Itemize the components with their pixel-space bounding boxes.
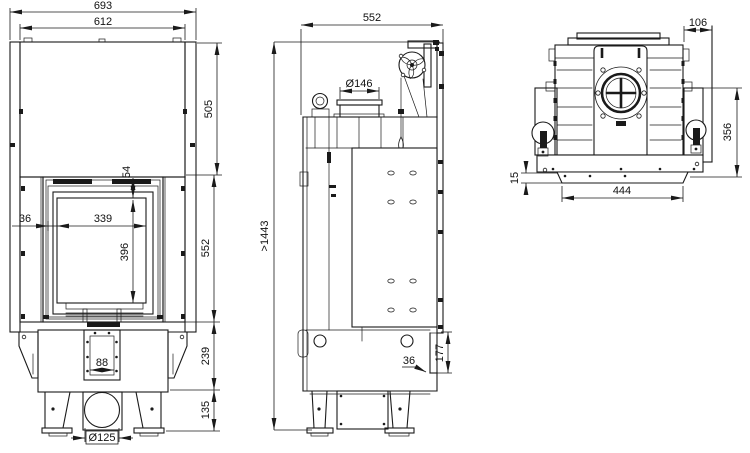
front-view: 693 612 505 552 239 135 54 36 33 — [10, 0, 222, 444]
convection-fan — [399, 52, 426, 79]
front-frame-left — [10, 42, 20, 332]
dim-front-hood-height: 505 — [203, 100, 215, 118]
drawing-canvas: 693 612 505 552 239 135 54 36 33 — [0, 0, 750, 453]
rear-view: 106 356 15 444 — [509, 17, 742, 202]
base-plate — [557, 172, 688, 183]
ashpan-slot — [84, 330, 120, 380]
dim-rear-frame-offset: 106 — [689, 17, 707, 29]
dim-front-leg-height: 135 — [200, 401, 212, 419]
dim-glass-height: 396 — [119, 243, 131, 261]
side-view: >1443 552 Ø146 177 36 — [259, 12, 452, 436]
bottom-vent — [87, 322, 120, 327]
front-column-left — [20, 177, 43, 322]
top-vent-right — [112, 179, 151, 184]
dim-rear-lower-height: 356 — [722, 123, 734, 141]
dim-rear-base-width: 444 — [613, 185, 631, 197]
center-duct-box — [337, 391, 388, 429]
rear-flue-flange — [595, 67, 647, 126]
dim-base-plate-thickness: 15 — [509, 172, 521, 184]
dim-air-inlet-diameter: Ø125 — [89, 432, 116, 444]
dim-front-base-height: 239 — [200, 347, 212, 365]
dim-ashpan-slot-width: 88 — [96, 357, 108, 369]
fireplace-technical-drawing: 693 612 505 552 239 135 54 36 33 — [0, 0, 750, 453]
lifting-eye — [312, 94, 329, 118]
dim-side-depth: 552 — [363, 12, 381, 24]
air-inlet — [85, 393, 120, 428]
dim-front-door-section-height: 552 — [200, 239, 212, 257]
bracket-left — [19, 332, 38, 378]
dim-glass-top-inset: 54 — [121, 166, 133, 178]
dim-front-overall-width: 693 — [94, 0, 112, 12]
dim-side-total-height: >1443 — [259, 221, 271, 252]
bracket-right — [168, 332, 187, 378]
front-column-right — [163, 177, 185, 322]
front-hood — [20, 42, 185, 177]
front-dimensions: 693 612 505 552 239 135 54 36 33 — [10, 0, 222, 444]
flue-collar — [334, 100, 384, 117]
front-frame-right — [185, 42, 196, 332]
dim-frame-side-inset: 36 — [19, 213, 31, 225]
dim-flue-collar-diameter: Ø146 — [346, 78, 373, 90]
counterweight-panel — [352, 148, 437, 327]
front-leg-right — [136, 392, 161, 428]
top-vent-left — [53, 179, 92, 184]
dim-rear-wall-offset: 36 — [403, 355, 415, 367]
dim-front-body-width: 612 — [94, 16, 112, 28]
glass-frame — [53, 192, 153, 314]
dim-rear-outlet-height: 177 — [434, 344, 446, 362]
front-leg-left — [45, 392, 70, 428]
door-frame — [43, 177, 163, 322]
dim-glass-width: 339 — [94, 213, 112, 225]
